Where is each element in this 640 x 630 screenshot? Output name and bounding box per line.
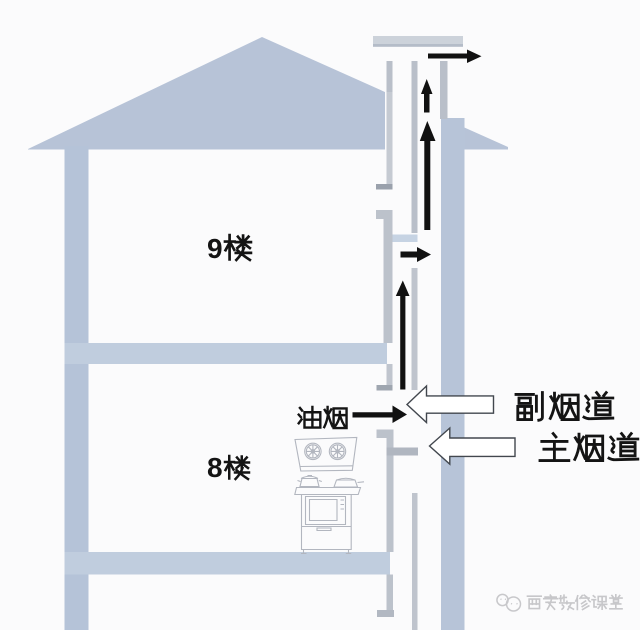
svg-text:9: 9 — [207, 233, 223, 264]
svg-text:8: 8 — [207, 452, 223, 483]
